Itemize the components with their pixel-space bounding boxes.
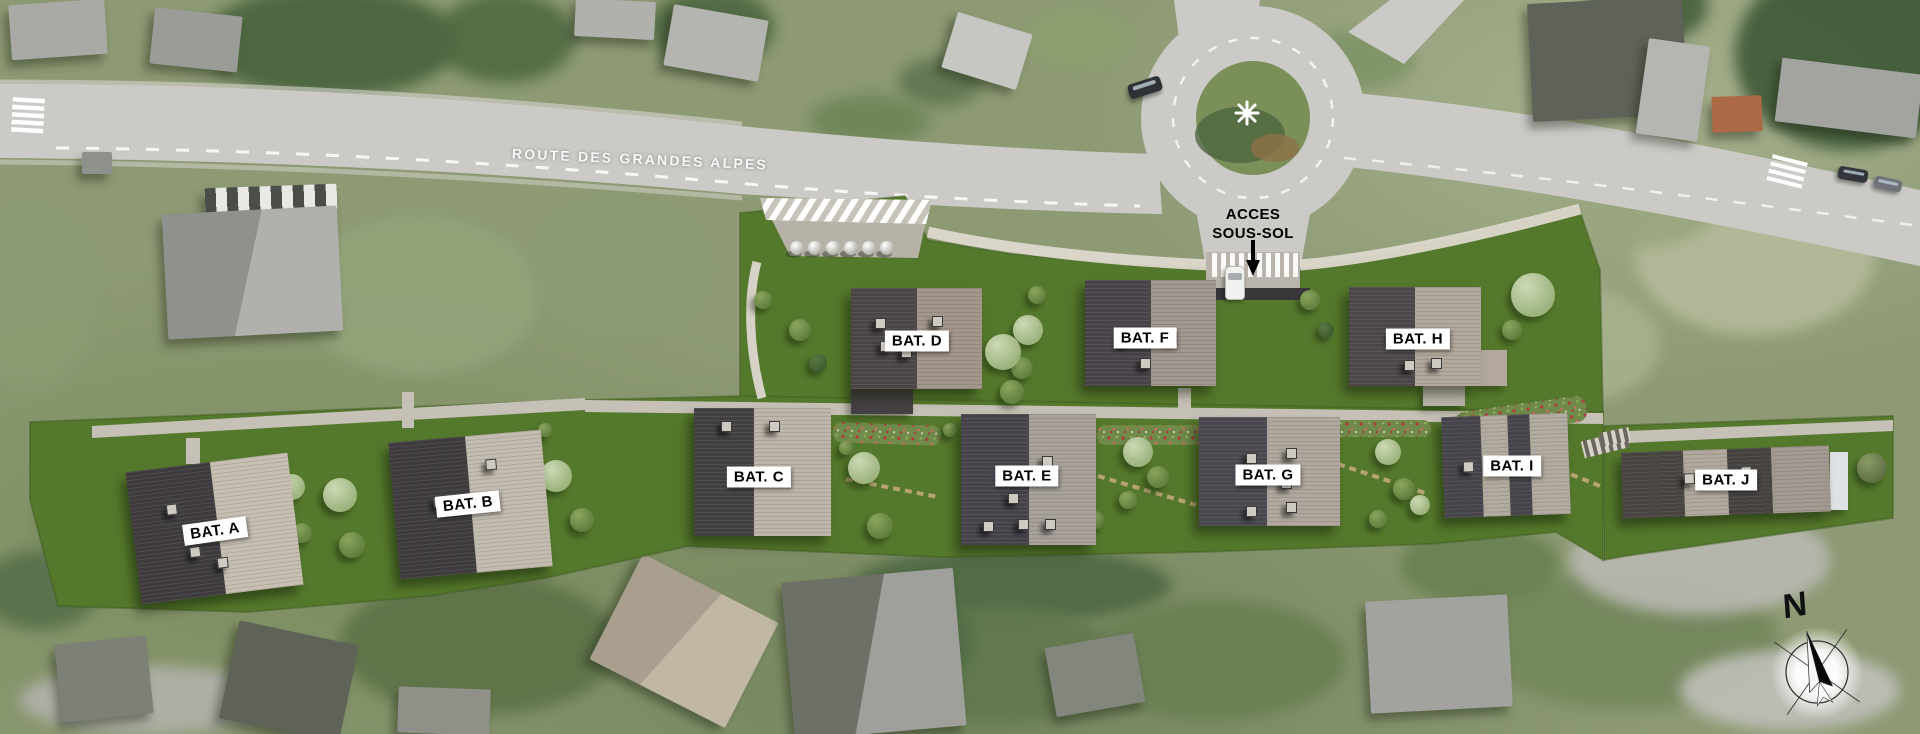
building-label-bat-f[interactable]: BAT. F (1114, 328, 1177, 349)
road-name-label: ROUTE DES GRANDES ALPES (512, 145, 769, 172)
building-label-bat-b[interactable]: BAT. B (435, 490, 501, 518)
down-arrow-icon (1245, 240, 1261, 276)
building-label-bat-g[interactable]: BAT. G (1235, 465, 1300, 486)
building-label-bat-j[interactable]: BAT. J (1695, 470, 1757, 491)
labels-layer: ROUTE DES GRANDES ALPES ACCES SOUS-SOL B… (0, 0, 1920, 734)
building-label-bat-e[interactable]: BAT. E (995, 466, 1058, 487)
building-label-bat-c[interactable]: BAT. C (727, 467, 791, 488)
building-label-bat-h[interactable]: BAT. H (1386, 329, 1450, 350)
compass-rose-icon (1757, 612, 1877, 732)
access-label-line1: ACCES (1212, 206, 1294, 225)
site-plan-canvas: ROUTE DES GRANDES ALPES ACCES SOUS-SOL B… (0, 0, 1920, 734)
building-label-bat-a[interactable]: BAT. A (182, 516, 248, 546)
compass-north-label: N (1782, 584, 1809, 627)
building-label-bat-d[interactable]: BAT. D (885, 331, 949, 352)
basement-access-label: ACCES SOUS-SOL (1212, 206, 1294, 244)
building-label-bat-i[interactable]: BAT. I (1483, 456, 1541, 477)
